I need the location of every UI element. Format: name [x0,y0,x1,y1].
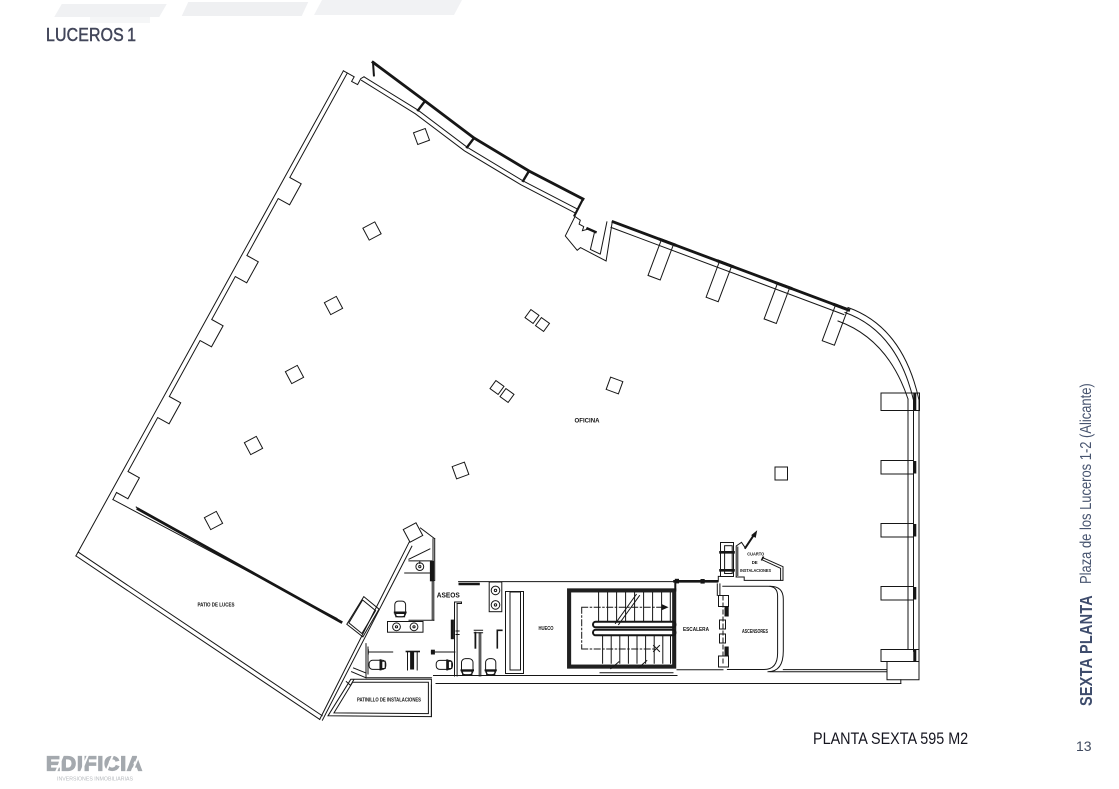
svg-text:OFICINA: OFICINA [575,419,601,425]
svg-text:ASEOS: ASEOS [437,590,460,599]
svg-text:PATIO DE LUCES: PATIO DE LUCES [198,603,235,609]
svg-text:CUARTO: CUARTO [747,551,764,557]
svg-text:ESCALERA: ESCALERA [683,627,709,633]
svg-text:INSTALACIONES: INSTALACIONES [740,568,772,574]
svg-text:HUECO: HUECO [539,626,554,632]
svg-text:PATINILLO DE INSTALACIONES: PATINILLO DE INSTALACIONES [357,698,421,704]
svg-text:EDIFICIA: EDIFICIA [46,754,143,776]
svg-text:DE: DE [752,560,759,566]
svg-text:INVERSIONES INMOBILIARIAS: INVERSIONES INMOBILIARIAS [57,777,133,783]
svg-text:ASCENSORES: ASCENSORES [742,629,768,635]
